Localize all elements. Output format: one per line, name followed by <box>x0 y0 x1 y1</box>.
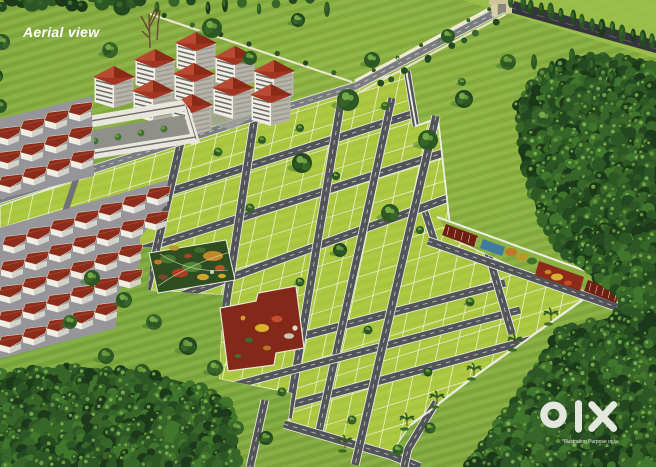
svg-text:Aerial view: Aerial view <box>22 24 100 40</box>
svg-text:*Illustration Purpose only: *Illustration Purpose only <box>562 439 618 445</box>
